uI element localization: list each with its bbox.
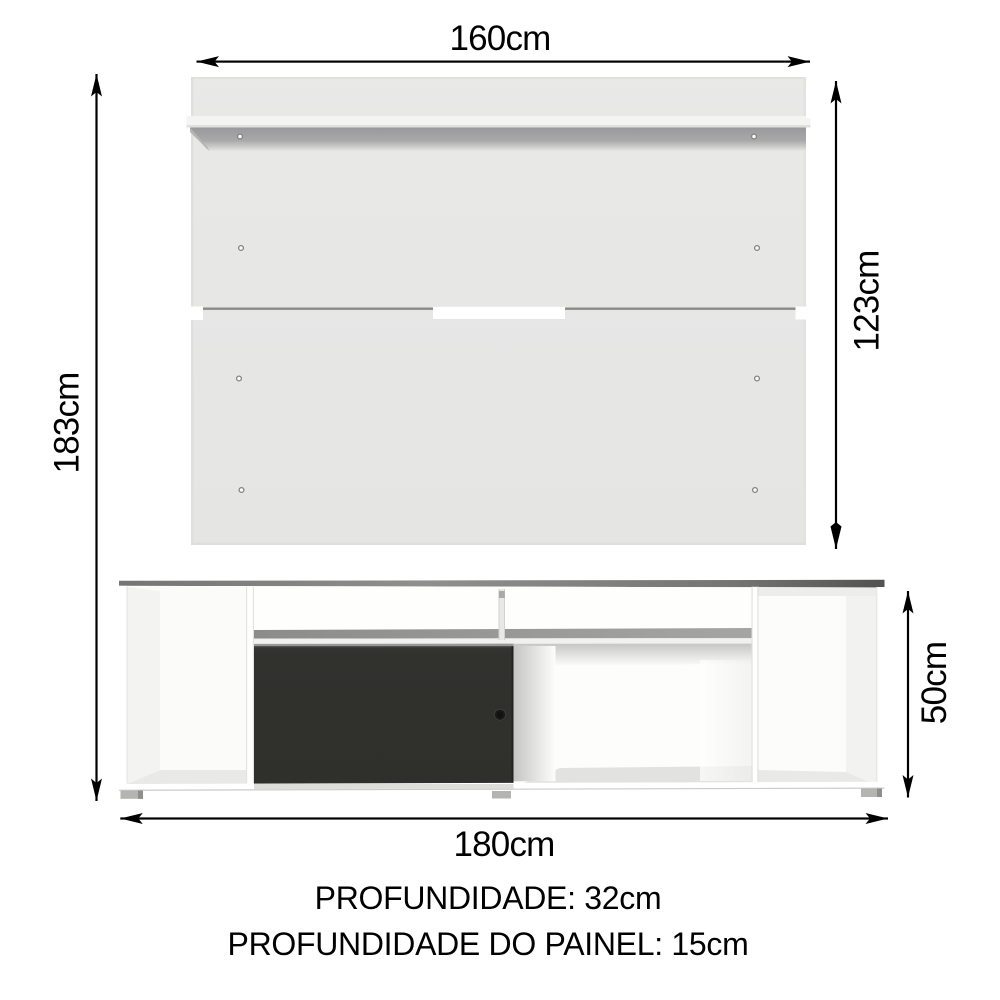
svg-text:183cm: 183cm: [48, 372, 87, 473]
svg-text:PROFUNDIDADE: 32cm: PROFUNDIDADE: 32cm: [315, 880, 662, 916]
svg-text:123cm: 123cm: [848, 250, 887, 351]
svg-text:160cm: 160cm: [449, 19, 550, 58]
svg-text:180cm: 180cm: [453, 825, 554, 864]
svg-text:PROFUNDIDADE DO PAINEL: 15cm: PROFUNDIDADE DO PAINEL: 15cm: [228, 926, 749, 962]
svg-text:50cm: 50cm: [915, 642, 954, 724]
